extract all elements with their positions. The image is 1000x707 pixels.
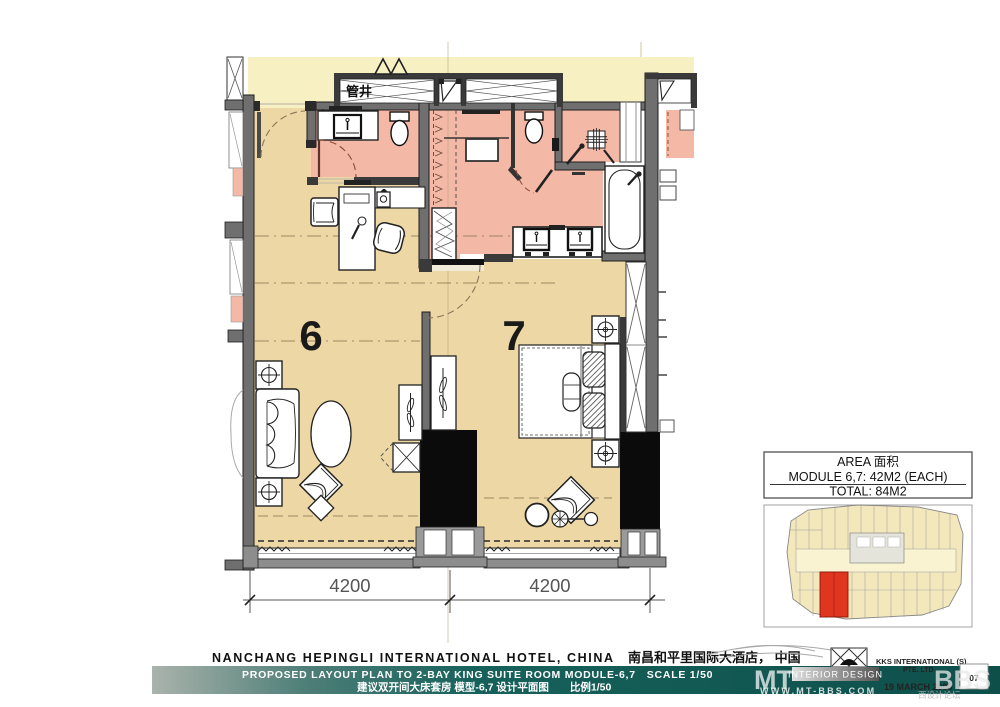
- svg-text:PTE. LTD: PTE. LTD: [903, 667, 934, 674]
- svg-text:6: 6: [299, 312, 322, 359]
- svg-text:7: 7: [502, 312, 525, 359]
- svg-text:INTERIOR DESIGN: INTERIOR DESIGN: [788, 670, 883, 680]
- svg-text:4200: 4200: [529, 575, 570, 596]
- svg-text:AREA 面积: AREA 面积: [837, 455, 899, 469]
- svg-text:4200: 4200: [329, 575, 370, 596]
- svg-text:管井: 管井: [346, 84, 372, 99]
- svg-text:TOTAL: 84M2: TOTAL: 84M2: [829, 485, 906, 499]
- svg-text:西设计论坛: 西设计论坛: [918, 690, 961, 700]
- svg-text:MODULE 6,7: 42M2 (EACH): MODULE 6,7: 42M2 (EACH): [788, 470, 947, 484]
- svg-text:PROPOSED LAYOUT PLAN TO 2-BAY: PROPOSED LAYOUT PLAN TO 2-BAY KING SUITE…: [242, 669, 713, 681]
- svg-text:WWW.MT-BBS.COM: WWW.MT-BBS.COM: [760, 686, 876, 696]
- svg-text:建议双开间大床套房 模型-6,7 设计平面图 比例1/50: 建议双开间大床套房 模型-6,7 设计平面图 比例1/50: [356, 681, 612, 694]
- svg-text:NANCHANG HEPINGLI INTERNATIONA: NANCHANG HEPINGLI INTERNATIONAL HOTEL, C…: [212, 651, 615, 665]
- svg-text:南昌和平里国际大酒店， 中国: 南昌和平里国际大酒店， 中国: [628, 650, 801, 665]
